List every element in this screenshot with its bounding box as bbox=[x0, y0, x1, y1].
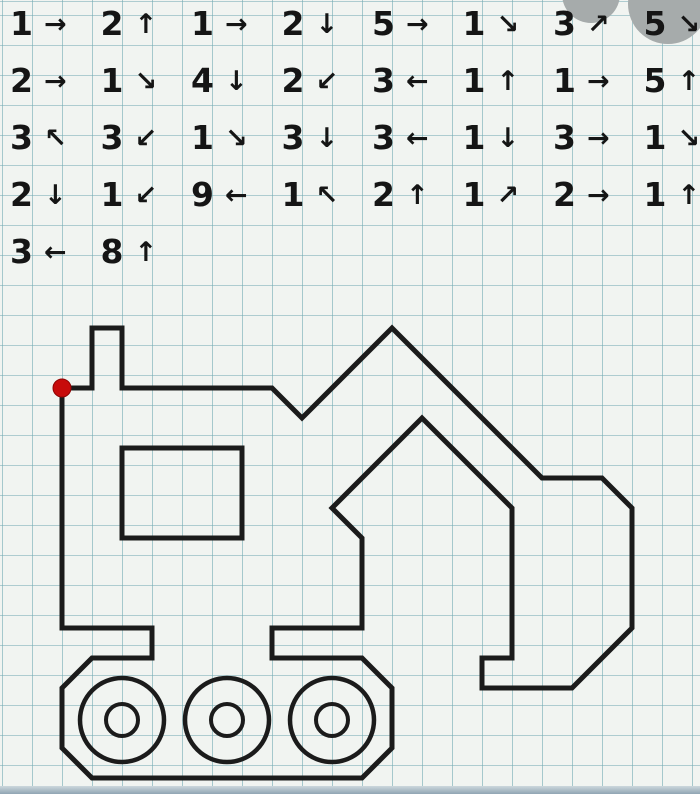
wheel-outer-circle bbox=[290, 678, 374, 762]
excavator-drawing bbox=[0, 0, 700, 794]
wheel-outer-circle bbox=[185, 678, 269, 762]
grid-paper-worksheet: 1→2↑1→2↓5→1↘3↗5↘2→1↘4↓2↙3←1↑1→5↑3↖3↙1↘3↓… bbox=[0, 0, 700, 794]
cab-window bbox=[122, 448, 242, 538]
start-dot bbox=[53, 379, 71, 397]
wheel-hub-circle bbox=[211, 704, 243, 736]
photo-edge bbox=[0, 786, 700, 794]
wheel-outer-circle bbox=[80, 678, 164, 762]
wheel-hub-circle bbox=[316, 704, 348, 736]
wheel-hub-circle bbox=[106, 704, 138, 736]
